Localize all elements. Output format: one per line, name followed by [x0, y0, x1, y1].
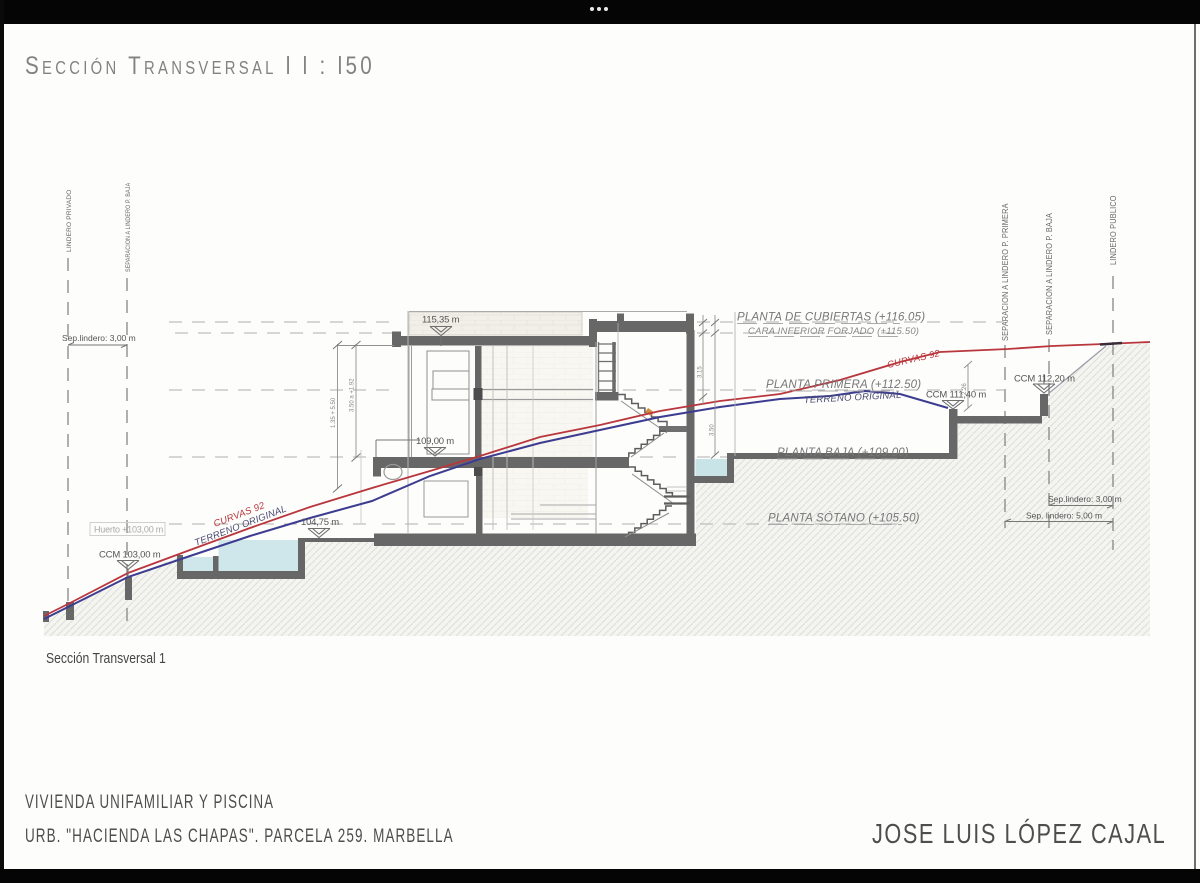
- svg-text:3.50: 3.50: [710, 424, 716, 436]
- svg-text:109,00 m: 109,00 m: [416, 436, 454, 447]
- svg-text:CCM 111,40 m: CCM 111,40 m: [926, 390, 986, 401]
- svg-text:Sep. lindero: 5,00 m: Sep. lindero: 5,00 m: [1026, 511, 1102, 521]
- svg-text:TERRENO ORIGINAL: TERRENO ORIGINAL: [804, 390, 902, 406]
- svg-text:CCM 112,20 m: CCM 112,20 m: [1014, 374, 1075, 385]
- svg-text:LINDERO PUBLICO: LINDERO PUBLICO: [1109, 195, 1118, 265]
- svg-text:CURVAS 92: CURVAS 92: [886, 348, 941, 371]
- svg-text:Sep.lindero: 3,00 m: Sep.lindero: 3,00 m: [62, 333, 136, 343]
- svg-text:CARA INFERIOR FORJADO (+115.50: CARA INFERIOR FORJADO (+115.50): [748, 326, 919, 337]
- svg-text:PLANTA DE CUBIERTAS (+116.05): PLANTA DE CUBIERTAS (+116.05): [737, 312, 925, 324]
- svg-text:SEPARACION A LINDERO P. BAJA: SEPARACION A LINDERO P. BAJA: [126, 183, 133, 272]
- svg-text:Huerto +103,00 m: Huerto +103,00 m: [94, 525, 163, 535]
- svg-text:104,75 m: 104,75 m: [301, 517, 339, 528]
- svg-text:Sep.lindero: 3,00 m: Sep.lindero: 3,00 m: [1048, 494, 1122, 504]
- svg-text:1.35 + 5.50: 1.35 + 5.50: [331, 397, 337, 428]
- svg-text:3.50 a +1.92: 3.50 a +1.92: [350, 378, 356, 412]
- svg-text:CCM 103,00 m: CCM 103,00 m: [99, 550, 161, 561]
- svg-text:PLANTA BAJA (+109.00): PLANTA BAJA (+109.00): [777, 447, 909, 459]
- svg-text:LINDERO PRIVADO: LINDERO PRIVADO: [66, 190, 73, 252]
- svg-text:PLANTA SÓTANO (+105.50): PLANTA SÓTANO (+105.50): [768, 512, 920, 525]
- svg-text:3.15: 3.15: [698, 366, 704, 378]
- svg-text:SEPARACION A LINDERO P. PRIMER: SEPARACION A LINDERO P. PRIMERA: [1001, 203, 1010, 341]
- svg-text:115,35 m: 115,35 m: [422, 315, 460, 326]
- svg-text:SEPARACION A LINDERO P. BAJA: SEPARACION A LINDERO P. BAJA: [1045, 212, 1054, 335]
